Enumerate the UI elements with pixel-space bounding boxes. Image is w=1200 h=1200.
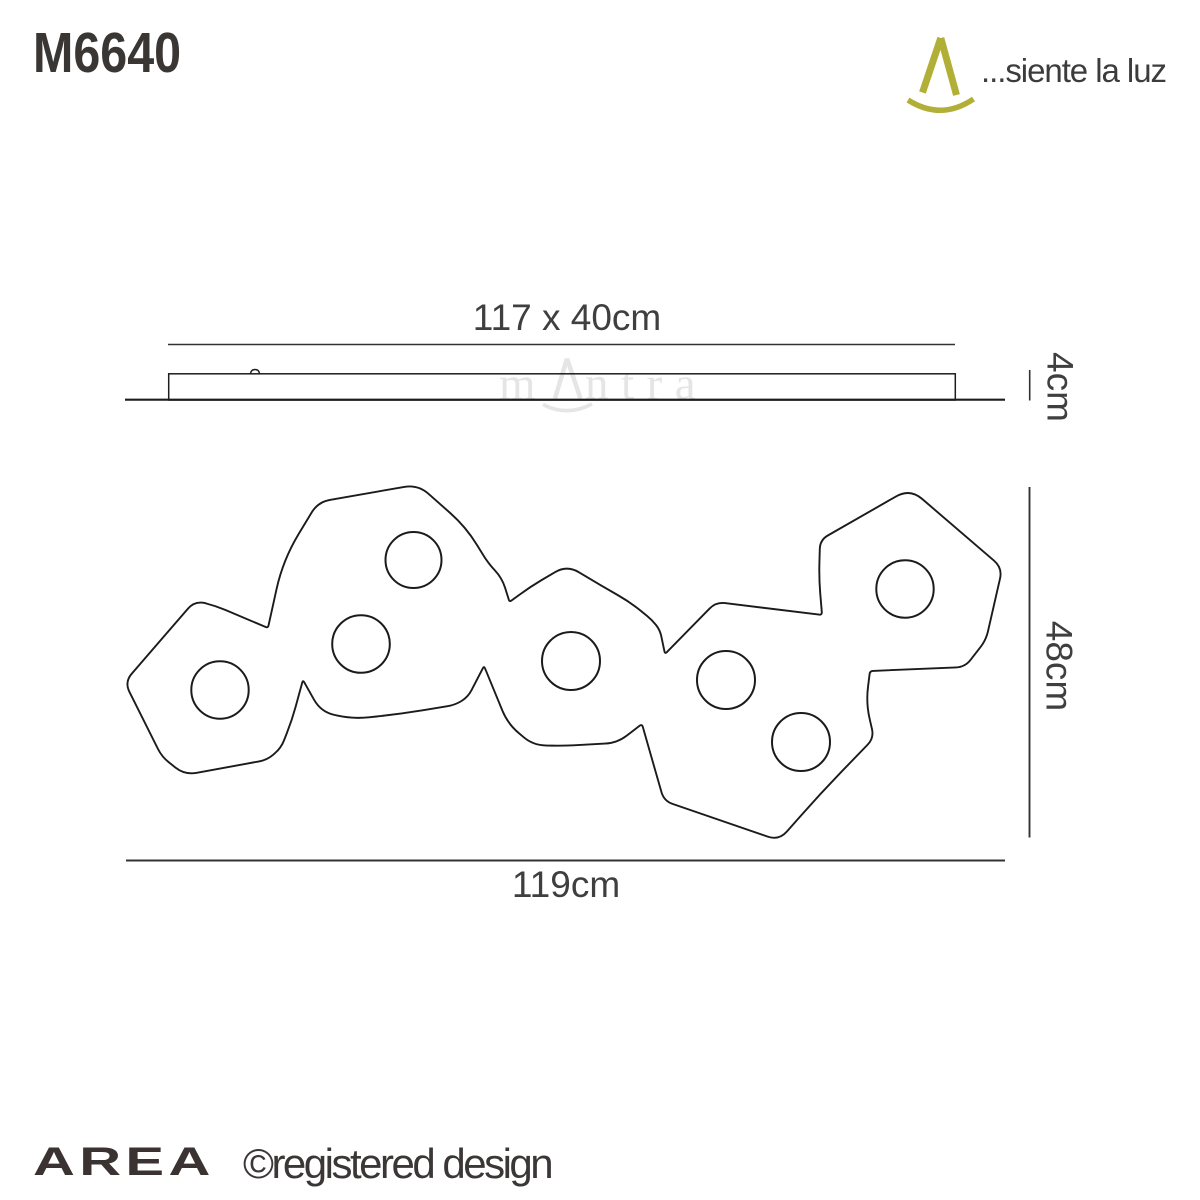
svg-text:48cm: 48cm bbox=[1039, 621, 1080, 711]
svg-text:AREA: AREA bbox=[33, 1139, 215, 1184]
svg-text:ntra: ntra bbox=[585, 358, 708, 410]
svg-text:4cm: 4cm bbox=[1040, 352, 1081, 422]
svg-text:119cm: 119cm bbox=[512, 864, 620, 905]
svg-text:©registered design: ©registered design bbox=[243, 1140, 551, 1187]
svg-text:...siente la luz: ...siente la luz bbox=[981, 52, 1166, 89]
svg-text:m: m bbox=[499, 358, 536, 410]
svg-text:M6640: M6640 bbox=[33, 21, 181, 85]
svg-text:117 x 40cm: 117 x 40cm bbox=[473, 297, 662, 338]
